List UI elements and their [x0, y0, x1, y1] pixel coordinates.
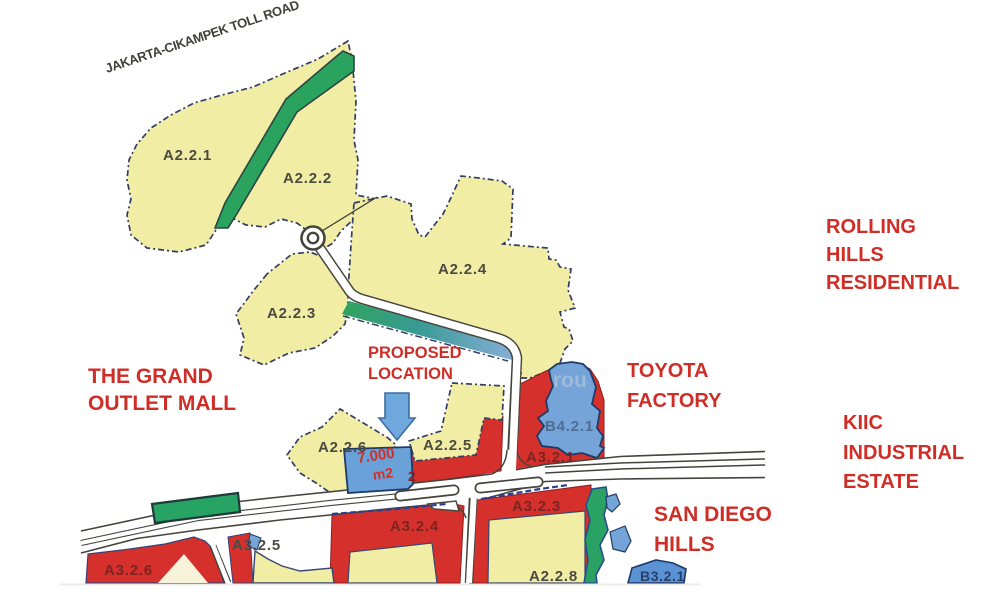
svg-text:HILLS: HILLS: [654, 533, 715, 556]
svg-text:KIIC: KIIC: [843, 412, 883, 434]
svg-text:ESTATE: ESTATE: [843, 471, 919, 493]
svg-text:A3.2.4: A3.2.4: [390, 518, 439, 535]
svg-text:ROLLING: ROLLING: [826, 216, 916, 238]
svg-text:LOCATION: LOCATION: [368, 365, 453, 383]
svg-text:B4.2.1: B4.2.1: [545, 418, 594, 435]
svg-text:A3.2.6: A3.2.6: [104, 562, 153, 579]
svg-text:A2.2.1: A2.2.1: [163, 147, 212, 164]
svg-text:RESIDENTIAL: RESIDENTIAL: [826, 272, 959, 294]
svg-text:THE GRAND: THE GRAND: [88, 365, 213, 388]
svg-text:INDUSTRIAL: INDUSTRIAL: [843, 442, 964, 464]
svg-text:A2.2.4: A2.2.4: [438, 261, 487, 278]
svg-text:2: 2: [408, 468, 416, 484]
svg-text:HILLS: HILLS: [826, 244, 884, 266]
svg-text:A2.2.2: A2.2.2: [283, 170, 332, 187]
svg-text:A3.2.1: A3.2.1: [526, 449, 575, 466]
svg-text:B3.2.1: B3.2.1: [640, 568, 685, 584]
svg-text:m2: m2: [372, 464, 394, 483]
svg-text:TOYOTA: TOYOTA: [627, 360, 708, 382]
svg-text:rou: rou: [553, 369, 587, 392]
svg-text:SAN DIEGO: SAN DIEGO: [654, 503, 772, 526]
svg-text:PROPOSED: PROPOSED: [368, 344, 462, 362]
svg-text:OUTLET MALL: OUTLET MALL: [88, 392, 236, 415]
svg-text:A2.2.5: A2.2.5: [423, 437, 472, 454]
svg-text:A2.2.8: A2.2.8: [529, 568, 578, 585]
svg-text:A2.2.3: A2.2.3: [267, 305, 316, 322]
svg-text:A3.2.3: A3.2.3: [512, 498, 561, 515]
svg-text:A3.2.5: A3.2.5: [232, 537, 281, 554]
svg-text:FACTORY: FACTORY: [627, 390, 722, 412]
